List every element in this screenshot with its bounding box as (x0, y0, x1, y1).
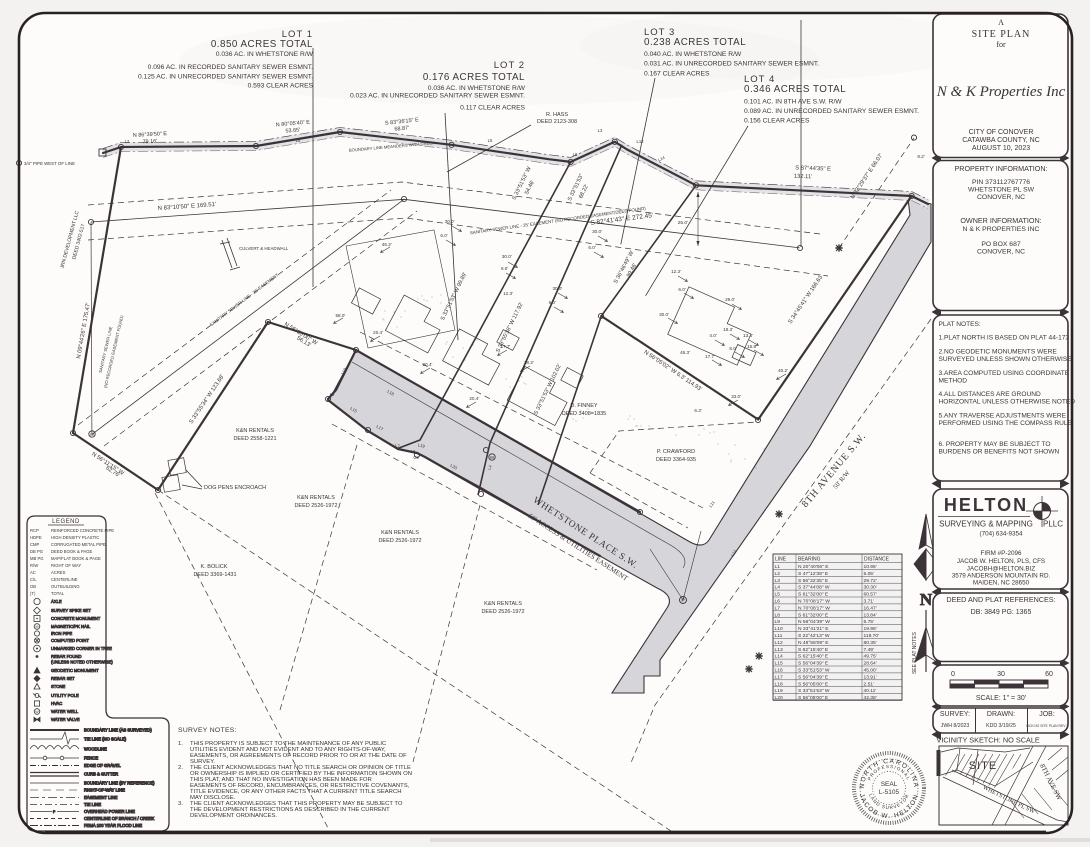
svg-text:L4: L4 (775, 585, 781, 591)
svg-text:UTILITY POLE: UTILITY POLE (51, 693, 79, 698)
svg-text:S 61°32'00" E: S 61°32'00" E (798, 592, 829, 598)
svg-text:3.71': 3.71' (864, 599, 875, 605)
svg-text:S 33°51'53" W: S 33°51'53" W (798, 688, 830, 694)
svg-text:GEODETIC MONUMENT: GEODETIC MONUMENT (51, 668, 99, 673)
svg-text:(T): (T) (30, 591, 36, 596)
svg-text:40.2': 40.2' (778, 368, 788, 373)
svg-text:JACOB W. HELTON, PLS, CFS: JACOB W. HELTON, PLS, CFS (957, 558, 1045, 565)
svg-text:0.089 AC. IN UNRECORDED SA: 0.089 AC. IN UNRECORDED SANITARY SEWER E… (744, 108, 919, 115)
svg-text:3.: 3. (178, 801, 183, 807)
svg-text:L7: L7 (775, 605, 781, 611)
svg-text:DEED BOOK & PAGE: DEED BOOK & PAGE (51, 549, 93, 554)
svg-text:0.101 AC. IN 8TH AVE S.W.: 0.101 AC. IN 8TH AVE S.W. R/W (744, 99, 842, 106)
svg-text:0.176 ACRES TOTAL: 0.176 ACRES TOTAL (423, 72, 525, 83)
svg-text:CATAWBA COUNTY, NC: CATAWBA COUNTY, NC (962, 137, 1040, 144)
svg-text:2.: 2. (178, 765, 183, 771)
svg-text:IRON PIPE: IRON PIPE (51, 631, 72, 636)
svg-text:PROPERTY INFORMATION:: PROPERTY INFORMATION: (954, 164, 1047, 173)
svg-text:0: 0 (951, 671, 955, 678)
svg-text:6.0': 6.0' (501, 266, 508, 271)
svg-text:K&N RENTALS: K&N RENTALS (381, 530, 419, 536)
svg-text:METHOD: METHOD (939, 378, 968, 385)
svg-text:SITE: SITE (969, 760, 997, 772)
svg-text:45.00': 45.00' (864, 668, 877, 674)
svg-text:29.0': 29.0' (725, 297, 735, 302)
svg-text:D. FINNEY: D. FINNEY (570, 403, 598, 409)
svg-text:JACOBH@HELTON.BIZ: JACOBH@HELTON.BIZ (967, 566, 1036, 573)
svg-text:REINFORCED CONCRETE PIPE: REINFORCED CONCRETE PIPE (51, 528, 114, 533)
svg-text:VICINITY SKETCH: NO SCALE: VICINITY SKETCH: NO SCALE (937, 736, 1040, 745)
svg-text:EASEMENT LINE: EASEMENT LINE (84, 795, 118, 800)
svg-text:40.11': 40.11' (864, 688, 877, 694)
svg-text:20.4': 20.4' (469, 396, 479, 401)
svg-text:ACRES: ACRES (51, 570, 66, 575)
svg-text:SEAL: SEAL (881, 781, 898, 788)
svg-text:S 37°44'08" W: S 37°44'08" W (798, 585, 830, 591)
svg-text:6.0': 6.0' (440, 233, 447, 238)
svg-text:5.ANY TRAVERSE ADJUSTMENTS WER: 5.ANY TRAVERSE ADJUSTMENTS WERE (939, 413, 1067, 420)
svg-text:L11: L11 (775, 633, 783, 639)
svg-text:L1: L1 (775, 564, 781, 570)
svg-text:60: 60 (1045, 671, 1053, 678)
svg-text:S 33°51'53" W: S 33°51'53" W (798, 668, 830, 674)
svg-text:0.096 AC. IN RECORDED SANI: 0.096 AC. IN RECORDED SANITARY SEWER ESM… (148, 64, 314, 71)
svg-text:N & K PROPERTIES INC: N & K PROPERTIES INC (963, 226, 1040, 233)
svg-text:16.47': 16.47' (864, 605, 877, 611)
svg-text:30.0': 30.0' (445, 219, 455, 224)
svg-text:0.125 AC. IN UNRECORDED SA: 0.125 AC. IN UNRECORDED SANITARY SEWER E… (138, 74, 313, 81)
svg-text:MAGNETIC/PK NAIL: MAGNETIC/PK NAIL (51, 624, 91, 629)
svg-text:18.3': 18.3' (524, 360, 534, 365)
svg-text:SEE PLAT NOTES: SEE PLAT NOTES (912, 631, 918, 674)
svg-text:N 70°08'17" W: N 70°08'17" W (798, 599, 830, 605)
svg-text:JWH 8/2023: JWH 8/2023 (941, 723, 970, 729)
svg-text:BOUNDARY LINE (AS SURVEYED): BOUNDARY LINE (AS SURVEYED) (84, 728, 152, 733)
svg-text:PERFORMED USING THE COMPASS RU: PERFORMED USING THE COMPASS RULE (939, 420, 1073, 427)
svg-text:CMP: CMP (30, 542, 40, 547)
svg-text:79.16': 79.16' (142, 139, 157, 146)
svg-text:6.0': 6.0' (678, 287, 685, 292)
svg-text:L13: L13 (775, 647, 783, 653)
svg-text:DEED 2526-1972: DEED 2526-1972 (481, 609, 524, 615)
svg-text:0.346 ACRES TOTAL: 0.346 ACRES TOTAL (744, 84, 846, 95)
svg-text:49.75': 49.75' (864, 654, 877, 660)
svg-text:12.3': 12.3' (503, 291, 513, 296)
svg-text:P. CRAWFORD: P. CRAWFORD (657, 449, 695, 455)
svg-text:N: N (920, 590, 933, 609)
svg-text:EASEMENTS, OR AGREEMENTS OF: EASEMENTS, OR AGREEMENTS OF RECORD PRIOR… (190, 753, 407, 759)
svg-text:L8: L8 (775, 612, 781, 618)
svg-text:K. BOLICK: K. BOLICK (201, 564, 228, 570)
svg-text:L5: L5 (488, 138, 493, 143)
svg-text:SURVEY SPIKE SET: SURVEY SPIKE SET (51, 608, 91, 613)
svg-text:HIGH DENSITY PLASTIC: HIGH DENSITY PLASTIC (51, 535, 99, 540)
svg-text:19.98': 19.98' (864, 626, 877, 632)
svg-text:RIGHT OF WAY: RIGHT OF WAY (51, 563, 81, 568)
svg-text:7.49': 7.49' (864, 647, 875, 653)
svg-text:13.84': 13.84' (864, 612, 877, 618)
svg-text:L17: L17 (775, 674, 783, 680)
svg-text:LOT 2: LOT 2 (494, 60, 525, 71)
svg-text:DISTANCE: DISTANCE (864, 557, 890, 563)
svg-text:FIRM #P-2096: FIRM #P-2096 (981, 550, 1022, 557)
svg-text:L6: L6 (296, 138, 301, 143)
svg-text:30.0': 30.0' (552, 286, 562, 291)
svg-text:DEED 2526-1972: DEED 2526-1972 (294, 503, 337, 509)
svg-text:13.4': 13.4' (743, 333, 753, 338)
svg-text:S 56°05'00" E: S 56°05'00" E (798, 695, 829, 701)
svg-text:S 56°05'00" E: S 56°05'00" E (798, 681, 829, 687)
svg-text:KDD 3/19/25: KDD 3/19/25 (986, 723, 1016, 729)
svg-text:30.30': 30.30' (864, 585, 877, 591)
svg-text:L6: L6 (775, 599, 781, 605)
svg-text:TOTAL: TOTAL (51, 591, 65, 596)
svg-text:L10: L10 (775, 626, 783, 632)
svg-text:18.3': 18.3' (723, 327, 733, 332)
svg-text:28.64': 28.64' (864, 661, 877, 667)
svg-text:30.0': 30.0' (502, 254, 512, 259)
svg-text:BOUNDARY LINE (BY REFERENCE: BOUNDARY LINE (BY REFERENCE) (84, 781, 155, 786)
svg-text:L3: L3 (598, 128, 603, 133)
svg-text:MAP/FLAT BOOK & PAGE: MAP/FLAT BOOK & PAGE (51, 556, 101, 561)
svg-text:M: M (36, 625, 39, 629)
svg-text:DEED 2526-1972: DEED 2526-1972 (378, 538, 421, 544)
svg-text:MB PG: MB PG (30, 556, 44, 561)
svg-text:3.AREA COMPUTED USING COORDINA: 3.AREA COMPUTED USING COORDINATE (939, 370, 1070, 377)
svg-text:DEED 3369-1431: DEED 3369-1431 (193, 572, 236, 578)
svg-text:60.57': 60.57' (864, 592, 877, 598)
svg-text:TIE LINE (NO SCALE): TIE LINE (NO SCALE) (84, 737, 127, 742)
svg-text:0.238 ACRES TOTAL: 0.238 ACRES TOTAL (644, 37, 746, 48)
svg-text:17.7': 17.7' (500, 344, 510, 349)
svg-text:WOODLINE: WOODLINE (84, 747, 107, 752)
svg-text:L14: L14 (775, 654, 783, 660)
svg-text:N 48°58'09" E: N 48°58'09" E (798, 640, 829, 646)
svg-text:MAIDEN, NC 28650: MAIDEN, NC 28650 (973, 580, 1030, 587)
svg-text:WHETSTONE PL SW: WHETSTONE PL SW (968, 187, 1035, 194)
svg-text:DB PG: DB PG (30, 549, 43, 554)
svg-text:33.0': 33.0' (731, 394, 741, 399)
svg-text:20.4': 20.4' (423, 362, 433, 367)
svg-text:0.023 AC. IN UNRECORDED SA: 0.023 AC. IN UNRECORDED SANITARY SEWER E… (350, 93, 525, 100)
svg-text:0.036 AC. IN WHETSTONE R/W: 0.036 AC. IN WHETSTONE R/W (428, 85, 526, 92)
svg-text:8.0': 8.0' (729, 346, 736, 351)
svg-text:132.11': 132.11' (794, 174, 813, 181)
svg-text:L-5105: L-5105 (879, 789, 900, 796)
svg-text:HDPE: HDPE (30, 535, 42, 540)
svg-text:29.72': 29.72' (864, 578, 877, 584)
svg-text:0.031 AC. IN UNRECORDED SA: 0.031 AC. IN UNRECORDED SANITARY SEWER E… (644, 61, 819, 68)
svg-text:L16: L16 (775, 668, 783, 674)
svg-text:S 47°12'39" E: S 47°12'39" E (798, 571, 829, 577)
svg-text:S 62°15'40" E: S 62°15'40" E (798, 654, 829, 660)
svg-text:REBAR FOUND: REBAR FOUND (51, 654, 81, 659)
svg-text:CITY OF CONOVER: CITY OF CONOVER (969, 129, 1034, 136)
svg-text:S 22°42'13" W: S 22°42'13" W (798, 633, 830, 639)
svg-text:HVAC: HVAC (51, 701, 62, 706)
svg-text:25.0': 25.0' (678, 220, 688, 226)
svg-text:N 20°40'06" E: N 20°40'06" E (798, 564, 829, 570)
svg-text:PIN 373112767776: PIN 373112767776 (972, 179, 1030, 186)
svg-text:10.95': 10.95' (864, 564, 877, 570)
svg-text:2.NO GEODETIC MONUMENTS WERE: 2.NO GEODETIC MONUMENTS WERE (939, 349, 1058, 356)
svg-text:30.0': 30.0' (659, 312, 669, 317)
svg-text:2.51': 2.51' (864, 681, 875, 687)
svg-text:S 87°44'35" E: S 87°44'35" E (795, 165, 831, 172)
svg-text:L5: L5 (775, 592, 781, 598)
svg-text:6.0': 6.0' (549, 300, 556, 305)
svg-text:L19: L19 (775, 688, 783, 694)
svg-text:AUGUST 10, 2023: AUGUST 10, 2023 (972, 145, 1030, 152)
svg-text:N 33°41'21" E: N 33°41'21" E (798, 626, 829, 632)
svg-text:WATER WELL: WATER WELL (51, 709, 79, 714)
svg-text:119.70': 119.70' (864, 633, 880, 639)
svg-text:CONOVER, NC: CONOVER, NC (977, 194, 1025, 201)
svg-text:STONE: STONE (51, 684, 66, 689)
svg-text:SCALE: 1" = 30': SCALE: 1" = 30' (976, 695, 1026, 702)
svg-text:CONOVER, NC: CONOVER, NC (977, 249, 1025, 256)
svg-text:S 56°04'39" E: S 56°04'39" E (798, 661, 829, 667)
svg-text:6.3': 6.3' (694, 408, 701, 413)
svg-text:(UNLESS NOTED OTHERWISE): (UNLESS NOTED OTHERWISE) (51, 660, 113, 665)
svg-text:R. HASS: R. HASS (546, 112, 568, 118)
svg-text:30: 30 (997, 671, 1005, 678)
svg-text:PLLC: PLLC (1043, 520, 1063, 529)
svg-text:5.05': 5.05' (864, 571, 875, 577)
svg-text:0.040 AC. IN WHETSTONE R/W: 0.040 AC. IN WHETSTONE R/W (644, 51, 742, 58)
svg-text:8.2': 8.2' (917, 154, 924, 159)
svg-text:L3: L3 (775, 578, 781, 584)
svg-text:4.0': 4.0' (709, 333, 716, 338)
svg-text:L6: L6 (411, 449, 416, 454)
svg-text:AC: AC (30, 570, 36, 575)
svg-text:COMPUTED POINT: COMPUTED POINT (51, 638, 89, 643)
svg-text:REBAR SET: REBAR SET (51, 676, 75, 681)
svg-text:R/W: R/W (30, 563, 38, 568)
svg-text:6. PROPERTY MAY BE SUBJECT TO: 6. PROPERTY MAY BE SUBJECT TO (939, 441, 1051, 448)
svg-text:46.3': 46.3' (680, 350, 690, 355)
svg-text:20.4': 20.4' (373, 330, 383, 335)
svg-text:1.: 1. (178, 741, 183, 747)
svg-text:L2: L2 (775, 571, 781, 577)
svg-text:SURVEY NOTES:: SURVEY NOTES: (178, 727, 237, 734)
svg-text:RIGHT-OF-WAY LINE: RIGHT-OF-WAY LINE (84, 788, 125, 793)
svg-text:S 62°15'40" E: S 62°15'40" E (798, 647, 829, 653)
svg-text:17.7': 17.7' (705, 354, 715, 359)
svg-text:12.3': 12.3' (671, 269, 681, 274)
svg-text:K&N RENTALS: K&N RENTALS (297, 495, 335, 501)
svg-text:DB: 3849 PG: 1365: DB: 3849 PG: 1365 (971, 609, 1032, 616)
svg-text:FEMA 100 YEAR FLOOD LINE: FEMA 100 YEAR FLOOD LINE (84, 823, 142, 828)
svg-text:0.036 AC. IN WHETSTONE R/W: 0.036 AC. IN WHETSTONE R/W (216, 51, 314, 58)
svg-text:0.593 CLEAR ACRES: 0.593 CLEAR ACRES (248, 83, 314, 90)
svg-text:UNMARKED CORNER IN TREE: UNMARKED CORNER IN TREE (51, 646, 112, 651)
svg-text:0.156 CLEAR ACRES: 0.156 CLEAR ACRES (744, 118, 810, 125)
svg-text:BEARING: BEARING (798, 557, 821, 563)
svg-text:SURVEY:: SURVEY: (940, 711, 970, 718)
svg-text:AXLE: AXLE (51, 599, 62, 604)
svg-text:LEGEND: LEGEND (52, 519, 80, 525)
svg-text:DEED 3364-935: DEED 3364-935 (656, 457, 696, 463)
svg-text:4.ALL DISTANCES ARE GROUND: 4.ALL DISTANCES ARE GROUND (939, 391, 1041, 398)
svg-text:46.3': 46.3' (382, 242, 392, 247)
svg-text:BURDENS OR BENEFITS NOT SHOWN: BURDENS OR BENEFITS NOT SHOWN (939, 449, 1060, 456)
svg-text:CENTERLINE: CENTERLINE (51, 577, 78, 582)
svg-text:6.0': 6.0' (588, 245, 595, 250)
svg-text:L12: L12 (775, 640, 783, 646)
svg-text:L18: L18 (775, 681, 783, 687)
svg-text:OUTBUILDING: OUTBUILDING (51, 584, 80, 589)
svg-text:TIE LINE: TIE LINE (84, 802, 101, 807)
svg-text:L15: L15 (775, 661, 783, 667)
svg-text:OVERHEAD POWER LINE: OVERHEAD POWER LINE (84, 809, 135, 814)
svg-text:DEED 2123-308: DEED 2123-308 (537, 119, 577, 125)
svg-text:CULVERT & HEADWALL: CULVERT & HEADWALL (239, 246, 289, 251)
svg-text:EDGE OF GRAVEL: EDGE OF GRAVEL (84, 763, 121, 768)
svg-text:13.91': 13.91' (864, 674, 877, 680)
svg-text:CENTERLINE OF BRANCH / CRE: CENTERLINE OF BRANCH / CREEK (84, 816, 154, 821)
svg-text:SITE PLAN: SITE PLAN (972, 29, 1031, 40)
svg-text:S 56°04'39" E: S 56°04'39" E (798, 674, 829, 680)
svg-text:HORIZONTAL UNLESS OTHERWISE NO: HORIZONTAL UNLESS OTHERWISE NOTED (939, 399, 1076, 406)
svg-text:30.0': 30.0' (592, 229, 602, 234)
svg-text:A: A (998, 18, 1004, 27)
svg-text:VICKI 52 SITE PLAN REV 3: VICKI 52 SITE PLAN REV 3 (1026, 724, 1069, 728)
svg-text:PO BOX 687: PO BOX 687 (981, 241, 1021, 248)
svg-text:0.167 CLEAR ACRES: 0.167 CLEAR ACRES (644, 71, 710, 78)
svg-text:0.117 CLEAR ACRES: 0.117 CLEAR ACRES (460, 105, 525, 112)
svg-text:L2: L2 (125, 139, 130, 144)
svg-text:for: for (996, 40, 1006, 49)
svg-text:PLAT NOTES:: PLAT NOTES: (939, 321, 981, 328)
svg-text:L20: L20 (775, 695, 783, 701)
svg-text:JOB:: JOB: (1039, 711, 1055, 718)
svg-text:3579 ANDERSON MOUNTAIN RD.: 3579 ANDERSON MOUNTAIN RD. (952, 573, 1051, 580)
svg-text:CURB & GUTTER: CURB & GUTTER (84, 772, 118, 777)
svg-text:42.38': 42.38' (864, 695, 877, 701)
svg-text:HELTON: HELTON (944, 495, 1028, 515)
svg-text:N 56°04'39" W: N 56°04'39" W (798, 619, 830, 625)
svg-text:RCP: RCP (30, 528, 39, 533)
svg-text:L8: L8 (573, 152, 578, 157)
svg-text:L9: L9 (775, 619, 781, 625)
svg-text:S 61°32'00" E: S 61°32'00" E (798, 612, 829, 618)
svg-text:C6: C6 (413, 455, 419, 460)
svg-text:OB: OB (30, 584, 36, 589)
svg-text:SURVEYED UNLESS SHOWN OTHERWIS: SURVEYED UNLESS SHOWN OTHERWISE (939, 356, 1073, 363)
svg-text:3/4" PIPE WEST OF LINE: 3/4" PIPE WEST OF LINE (24, 161, 75, 166)
svg-text:DOG PENS ENCROACH: DOG PENS ENCROACH (204, 485, 266, 491)
svg-text:SURVEYING & MAPPING: SURVEYING & MAPPING (939, 520, 1033, 529)
svg-text:DRAWN:: DRAWN: (987, 711, 1015, 718)
svg-text:WATER VALVE: WATER VALVE (51, 717, 80, 722)
svg-text:0.850 ACRES TOTAL: 0.850 ACRES TOTAL (211, 39, 313, 50)
svg-text:DEVELOPMENT ORDINANCES.: DEVELOPMENT ORDINANCES. (190, 813, 277, 819)
svg-text:W: W (35, 710, 39, 714)
svg-text:N 70°08'17" W: N 70°08'17" W (798, 605, 830, 611)
svg-text:C/L: C/L (30, 577, 37, 582)
svg-text:1.PLAT NORTH IS BASED ON PLAT: 1.PLAT NORTH IS BASED ON PLAT 44-173 (939, 335, 1070, 342)
svg-text:(704) 634-9354: (704) 634-9354 (979, 531, 1023, 538)
svg-text:58.0': 58.0' (335, 313, 345, 318)
svg-text:S 66°32'35" E: S 66°32'35" E (798, 578, 829, 584)
svg-text:5.75': 5.75' (864, 619, 875, 625)
svg-text:15.8': 15.8' (747, 344, 757, 349)
svg-text:DEED AND PLAT REFERENCES:: DEED AND PLAT REFERENCES: (946, 595, 1055, 604)
svg-text:OWNER INFORMATION:: OWNER INFORMATION: (960, 216, 1041, 225)
svg-text:FENCE: FENCE (84, 756, 98, 761)
svg-text:CORRUGATED METAL PIPE: CORRUGATED METAL PIPE (51, 542, 106, 547)
svg-text:L13: L13 (637, 139, 645, 144)
svg-text:DEED 2558-1221: DEED 2558-1221 (233, 436, 276, 442)
svg-text:80.35': 80.35' (864, 640, 877, 646)
svg-text:LINE: LINE (775, 557, 787, 563)
svg-text:CONCRETE MONUMENT: CONCRETE MONUMENT (51, 616, 101, 621)
svg-text:K&N RENTALS: K&N RENTALS (236, 428, 274, 434)
svg-text:L9: L9 (330, 392, 335, 397)
svg-text:N & K Properties Inc: N & K Properties Inc (936, 84, 1066, 100)
svg-text:K&N RENTALS: K&N RENTALS (484, 601, 522, 607)
